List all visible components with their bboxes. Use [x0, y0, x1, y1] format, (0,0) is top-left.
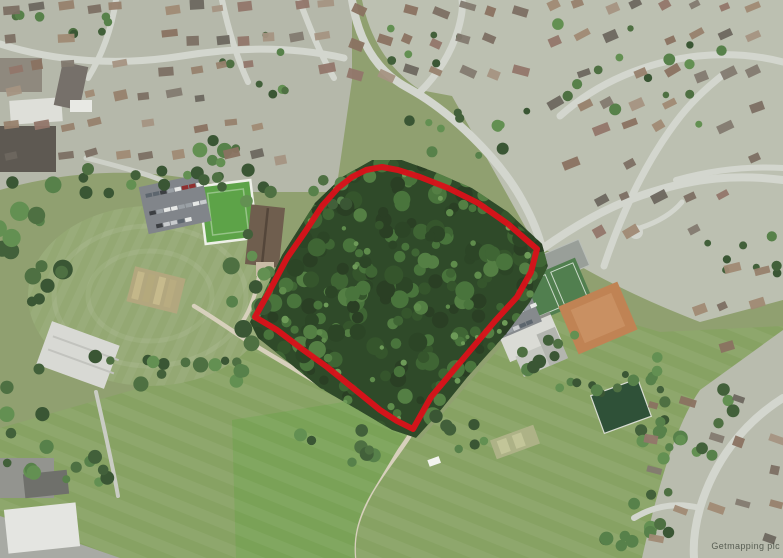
tree-canopy	[0, 381, 13, 394]
tree-canopy	[437, 125, 445, 133]
tree-canopy	[496, 253, 513, 270]
tree-canopy	[387, 56, 396, 65]
tree-canopy	[89, 350, 103, 364]
tree-canopy	[430, 32, 437, 39]
tree-canopy	[352, 312, 364, 324]
tree-canopy	[106, 356, 114, 364]
tree-canopy	[471, 294, 486, 309]
tree-canopy	[355, 249, 363, 257]
tree-canopy	[347, 458, 356, 467]
tree-canopy	[35, 407, 49, 421]
tree-canopy	[287, 259, 305, 277]
tree-canopy	[207, 155, 218, 166]
tree-canopy	[126, 180, 136, 190]
tree-canopy	[628, 375, 640, 387]
tree-canopy	[454, 109, 462, 117]
tree-canopy	[264, 186, 276, 198]
tree-canopy	[244, 335, 260, 351]
tree-canopy	[384, 266, 403, 285]
tree-canopy	[517, 347, 528, 358]
tree-canopy	[627, 25, 633, 31]
tree-canopy	[82, 163, 94, 175]
tree-canopy	[243, 229, 253, 239]
tree-canopy	[716, 45, 726, 55]
canopy-highlight	[317, 330, 323, 336]
house-roof	[190, 0, 205, 10]
canopy-highlight	[438, 196, 443, 201]
tree-canopy	[217, 182, 227, 192]
tree-canopy	[594, 66, 603, 75]
tree-canopy	[401, 308, 412, 319]
tree-canopy	[28, 207, 45, 224]
tree-canopy	[237, 365, 250, 378]
tree-canopy	[3, 229, 21, 247]
tree-canopy	[695, 121, 702, 128]
tree-canopy	[226, 296, 238, 308]
house-roof	[225, 119, 238, 126]
tree-canopy	[696, 442, 708, 454]
tree-canopy	[325, 286, 338, 299]
tree-canopy	[375, 221, 384, 230]
tree-canopy	[428, 274, 442, 288]
house-roof	[137, 92, 149, 101]
tree-canopy	[62, 475, 70, 483]
house-roof	[3, 5, 20, 15]
tree-canopy	[616, 540, 627, 551]
tree-canopy	[418, 351, 430, 363]
tree-canopy	[455, 445, 463, 453]
tree-canopy	[626, 535, 639, 548]
tree-canopy	[475, 152, 482, 159]
tree-canopy	[157, 369, 167, 379]
tree-canopy	[347, 300, 360, 313]
tree-canopy	[10, 202, 29, 221]
tree-canopy	[378, 207, 388, 217]
tree-canopy	[549, 351, 559, 361]
tree-canopy	[323, 208, 335, 220]
tree-canopy	[657, 386, 664, 393]
tree-canopy	[6, 428, 17, 439]
tree-canopy	[713, 418, 723, 428]
tree-canopy	[193, 357, 208, 372]
tree-canopy	[249, 280, 263, 294]
tree-canopy	[646, 375, 657, 386]
tree-canopy	[181, 358, 191, 368]
canopy-highlight	[281, 316, 288, 323]
canopy-highlight	[451, 332, 459, 340]
tree-canopy	[543, 335, 554, 346]
tree-canopy	[158, 179, 170, 191]
tree-canopy	[223, 257, 240, 274]
tree-canopy	[345, 286, 360, 301]
canopy-highlight	[354, 241, 359, 246]
tree-canopy	[319, 376, 328, 385]
tree-canopy	[308, 238, 326, 256]
tree-canopy	[216, 158, 225, 167]
aerial-map: Getmapping plc	[0, 0, 783, 558]
canopy-highlight	[324, 303, 329, 308]
tree-canopy	[458, 200, 468, 210]
tree-canopy	[409, 333, 428, 352]
house-roof	[237, 36, 249, 46]
tree-canopy	[393, 316, 403, 326]
canopy-highlight	[279, 287, 287, 295]
tree-canopy	[492, 120, 504, 132]
house-roof	[61, 60, 75, 67]
tree-canopy	[704, 240, 711, 247]
tree-canopy	[340, 198, 352, 210]
tree-canopy	[685, 90, 694, 99]
tree-canopy	[659, 426, 667, 434]
canopy-highlight	[474, 272, 481, 279]
tree-canopy	[257, 268, 270, 281]
tree-canopy	[308, 186, 319, 197]
tree-canopy	[264, 329, 275, 340]
tree-canopy	[387, 25, 395, 33]
tree-canopy	[655, 417, 665, 427]
tree-canopy	[663, 527, 674, 538]
tree-canopy	[616, 54, 624, 62]
watermark-attribution: Getmapping plc	[711, 541, 780, 551]
tree-canopy	[55, 266, 68, 279]
house-roof	[195, 95, 205, 103]
canopy-highlight	[465, 335, 469, 339]
tree-canopy	[350, 324, 366, 340]
tree-canopy	[523, 108, 530, 115]
tree-canopy	[226, 60, 235, 69]
tree-canopy	[394, 251, 405, 262]
tree-canopy	[675, 435, 686, 446]
tree-canopy	[355, 424, 368, 437]
tree-canopy	[432, 59, 440, 67]
house-roof	[158, 67, 174, 77]
tree-canopy	[40, 279, 54, 293]
house-roof	[108, 2, 122, 11]
canopy-highlight	[387, 403, 394, 410]
industrial-roof	[4, 502, 80, 553]
tree-canopy	[652, 366, 663, 377]
tree-canopy	[572, 79, 582, 89]
tree-canopy	[390, 177, 405, 192]
tree-canopy	[654, 518, 666, 530]
tree-canopy	[472, 309, 485, 322]
house-roof	[263, 32, 275, 41]
tree-canopy	[427, 146, 438, 157]
house-roof	[58, 34, 75, 43]
tree-canopy	[432, 312, 449, 329]
canopy-highlight	[470, 240, 476, 246]
tree-canopy	[707, 450, 718, 461]
tree-canopy	[98, 28, 106, 36]
tree-canopy	[419, 282, 431, 294]
tree-canopy	[663, 92, 670, 99]
tree-canopy	[610, 104, 621, 115]
tree-canopy	[287, 294, 302, 309]
house-roof	[237, 1, 252, 12]
tree-canopy	[665, 443, 673, 451]
tree-canopy	[242, 164, 255, 177]
tree-canopy	[658, 452, 670, 464]
tree-canopy	[240, 196, 252, 208]
canopy-highlight	[414, 303, 422, 311]
tree-canopy	[723, 395, 734, 406]
tree-canopy	[183, 171, 192, 180]
aerial-photo-canvas: Getmapping plc	[0, 0, 783, 558]
house-roof	[216, 35, 230, 45]
tree-canopy	[303, 325, 317, 339]
tree-canopy	[324, 354, 333, 363]
tree-canopy	[234, 320, 252, 338]
tree-canopy	[268, 90, 277, 99]
tree-canopy	[208, 135, 219, 146]
canopy-highlight	[497, 329, 502, 334]
tree-canopy	[388, 241, 397, 250]
tree-canopy	[659, 396, 670, 407]
tree-canopy	[380, 371, 391, 382]
tree-canopy	[25, 268, 42, 285]
building	[70, 100, 92, 112]
tree-canopy	[158, 358, 170, 370]
tree-canopy	[613, 383, 622, 392]
tree-canopy	[131, 170, 141, 180]
canopy-highlight	[524, 252, 531, 259]
tree-canopy	[563, 91, 573, 101]
canopy-highlight	[364, 248, 371, 255]
tree-canopy	[209, 358, 222, 371]
tree-canopy	[104, 188, 115, 199]
tree-canopy	[45, 176, 62, 193]
tree-canopy	[395, 222, 411, 238]
tree-canopy	[628, 498, 640, 510]
tree-canopy	[570, 331, 579, 340]
canopy-highlight	[526, 290, 533, 297]
tree-canopy	[591, 384, 603, 396]
tree-canopy	[652, 352, 663, 363]
tree-canopy	[404, 50, 412, 58]
canopy-highlight	[321, 338, 326, 343]
tree-canopy	[6, 176, 18, 188]
tree-canopy	[684, 59, 694, 69]
tree-canopy	[35, 12, 45, 22]
tree-canopy	[133, 376, 148, 391]
canopy-highlight	[461, 341, 465, 345]
tree-canopy	[429, 410, 442, 423]
tree-canopy	[88, 450, 102, 464]
tree-canopy	[664, 488, 673, 497]
tree-canopy	[291, 326, 299, 334]
tree-canopy	[468, 419, 479, 430]
tree-canopy	[198, 174, 209, 185]
tree-canopy	[480, 437, 489, 446]
tree-canopy	[552, 18, 564, 30]
tree-canopy	[555, 383, 564, 392]
house-roof	[769, 465, 780, 476]
tree-canopy	[147, 356, 160, 369]
tree-canopy	[646, 490, 656, 500]
tree-canopy	[767, 231, 777, 241]
tree-canopy	[391, 338, 402, 349]
canopy-highlight	[370, 377, 375, 382]
canopy-highlight	[455, 378, 461, 384]
tree-canopy	[307, 436, 316, 445]
canopy-highlight	[446, 209, 453, 216]
tree-canopy	[425, 119, 432, 126]
canopy-highlight	[502, 320, 508, 326]
canopy-highlight	[352, 264, 357, 269]
tree-canopy	[553, 339, 563, 349]
tree-canopy	[303, 271, 319, 287]
house-roof	[186, 36, 199, 46]
tree-canopy	[727, 404, 740, 417]
canopy-highlight	[451, 261, 458, 268]
tree-canopy	[157, 166, 168, 177]
tree-canopy	[416, 396, 424, 404]
tree-canopy	[221, 357, 229, 365]
tree-canopy	[527, 361, 540, 374]
tree-canopy	[354, 208, 367, 221]
tree-canopy	[717, 383, 730, 396]
canopy-highlight	[342, 226, 346, 230]
tree-canopy	[80, 186, 93, 199]
tree-canopy	[212, 172, 223, 183]
house-roof	[5, 34, 17, 44]
tree-canopy	[318, 175, 329, 186]
tree-canopy	[418, 253, 433, 268]
tree-canopy	[327, 324, 345, 342]
tree-canopy	[723, 255, 731, 263]
tree-canopy	[193, 143, 208, 158]
tree-canopy	[446, 268, 455, 277]
tree-canopy	[102, 12, 111, 21]
tree-canopy	[294, 428, 307, 441]
tree-canopy	[365, 266, 377, 278]
tree-canopy	[267, 312, 278, 323]
tree-canopy	[71, 462, 82, 473]
tree-canopy	[470, 439, 480, 449]
tree-canopy	[440, 420, 453, 433]
canopy-highlight	[380, 345, 384, 349]
tree-canopy	[404, 115, 415, 126]
house-roof	[243, 60, 254, 68]
canopy-highlight	[446, 305, 450, 309]
tree-canopy	[622, 371, 629, 378]
school-building	[0, 126, 56, 172]
tree-canopy	[411, 248, 419, 256]
tree-canopy	[469, 204, 477, 212]
tree-canopy	[40, 440, 54, 454]
tree-canopy	[455, 281, 474, 300]
tree-canopy	[772, 261, 782, 271]
tree-canopy	[337, 263, 349, 275]
tree-canopy	[686, 41, 693, 48]
tree-canopy	[256, 81, 263, 88]
tree-canopy	[497, 143, 509, 155]
tree-canopy	[425, 231, 435, 241]
tree-canopy	[572, 378, 581, 387]
tree-canopy	[663, 54, 675, 66]
canopy-highlight	[401, 360, 407, 366]
tree-canopy	[314, 301, 323, 310]
tree-canopy	[277, 48, 285, 56]
tree-canopy	[600, 532, 614, 546]
tree-canopy	[3, 459, 12, 468]
tree-canopy	[247, 251, 258, 262]
tree-canopy	[98, 465, 109, 476]
tree-canopy	[281, 87, 288, 94]
tree-canopy	[34, 293, 45, 304]
tree-canopy	[464, 299, 474, 309]
tree-canopy	[394, 366, 405, 377]
house-roof	[31, 59, 44, 71]
tree-canopy	[401, 243, 409, 251]
tree-canopy	[398, 389, 413, 404]
tree-canopy	[365, 445, 374, 454]
tree-canopy	[393, 191, 410, 208]
tree-canopy	[739, 241, 747, 249]
tree-canopy	[27, 465, 41, 479]
tree-canopy	[34, 364, 45, 375]
